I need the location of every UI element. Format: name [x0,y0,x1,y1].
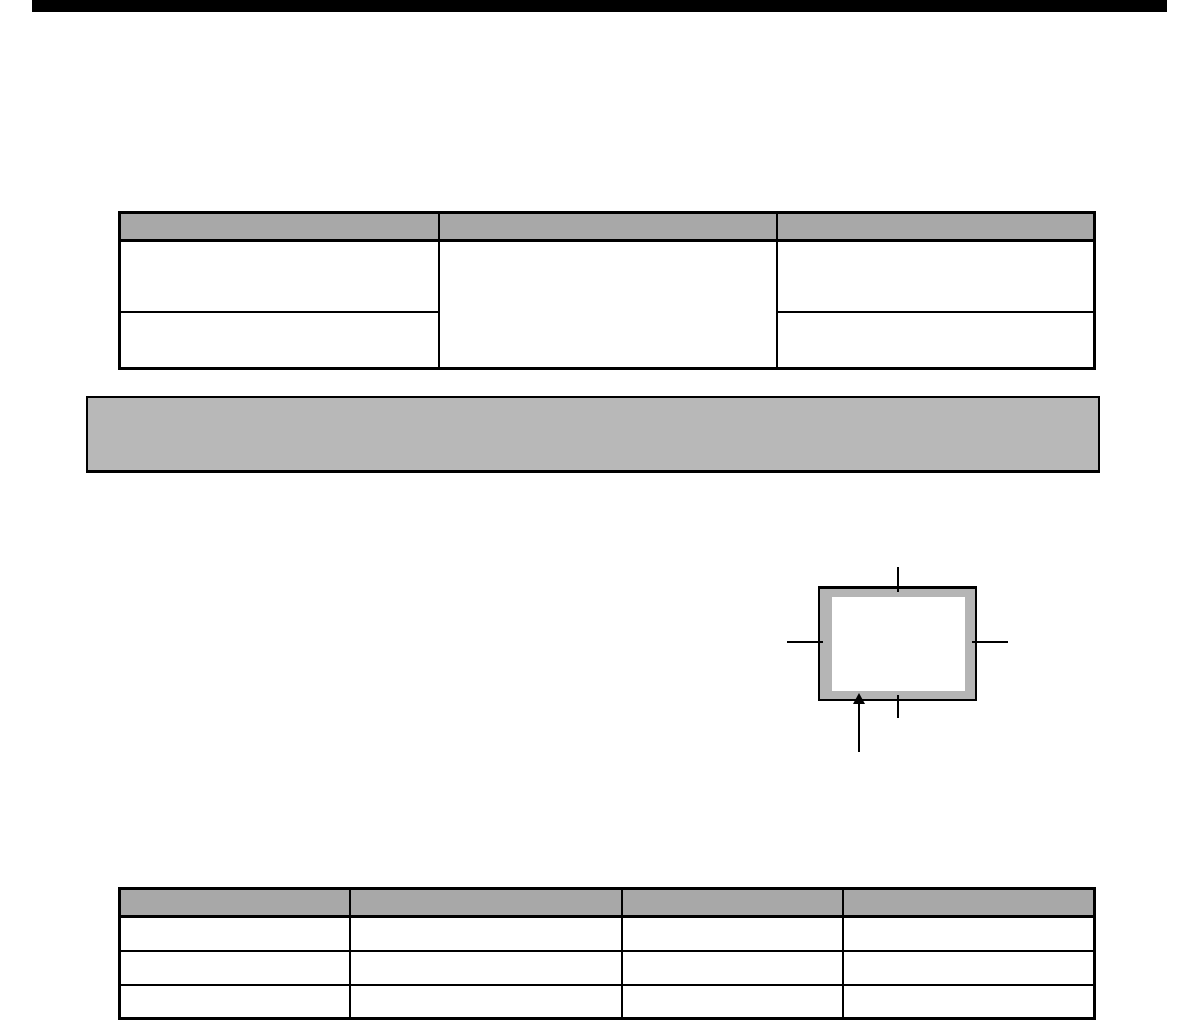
table-cell [350,985,622,1019]
table-header-cell [120,889,350,917]
table-cell [120,917,350,951]
bottom-crop-mark [897,695,899,718]
table-cell [622,917,843,951]
bottom-table [118,887,1096,1020]
table-cell [622,985,843,1019]
top-crop-mark [897,567,899,592]
up-arrow-shaft [858,702,860,752]
table-row [120,951,1095,985]
table-cell [120,241,439,312]
table-header-cell [350,889,622,917]
table-cell [120,985,350,1019]
table-cell [350,951,622,985]
table-header-cell [622,889,843,917]
table-cell [777,312,1095,369]
document-page [0,0,1191,1021]
shaded-callout-band [86,396,1100,473]
table-header-cell [777,213,1095,241]
table-header-cell [120,213,439,241]
table-header-cell [439,213,777,241]
table-cell-merged [439,241,777,369]
table-cell [120,951,350,985]
margin-figure-inner-area [832,597,965,691]
top-table [118,211,1096,370]
table-header-row [120,889,1095,917]
table-header-row [120,213,1095,241]
right-crop-mark [972,641,1008,643]
table-cell [777,241,1095,312]
table-cell [843,951,1095,985]
up-arrow-head-icon [853,693,865,704]
table-row [120,917,1095,951]
table-cell [120,312,439,369]
table-row [120,241,1095,312]
table-cell [350,917,622,951]
left-crop-mark [787,641,823,643]
table-row [120,985,1095,1019]
table-header-cell [843,889,1095,917]
table-cell [843,985,1095,1019]
table-cell [622,951,843,985]
table-cell [843,917,1095,951]
top-black-rule [32,0,1167,12]
